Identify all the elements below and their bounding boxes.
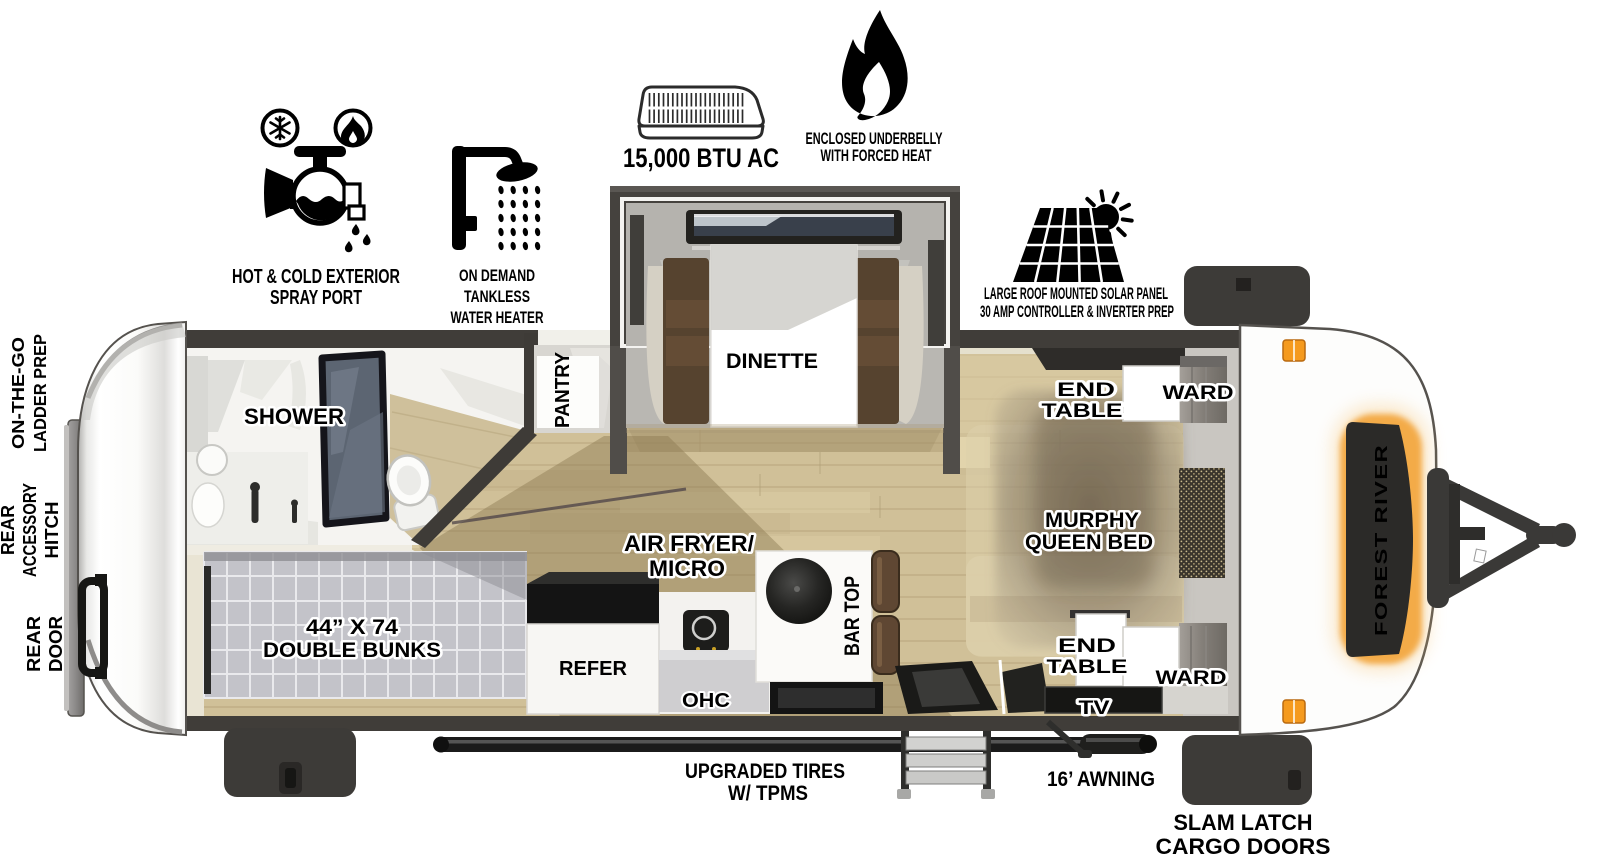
svg-text:OHC: OHC (682, 690, 730, 712)
svg-text:END: END (1058, 636, 1116, 657)
svg-text:MICRO: MICRO (649, 556, 725, 581)
svg-text:30 AMP CONTROLLER & INVERTER P: 30 AMP CONTROLLER & INVERTER PREP (980, 303, 1174, 321)
svg-text:DOOR: DOOR (45, 616, 66, 672)
svg-text:QUEEN BED: QUEEN BED (1025, 531, 1153, 554)
svg-text:REFER: REFER (559, 658, 628, 680)
svg-text:W/ TPMS: W/ TPMS (728, 782, 808, 805)
svg-text:DOUBLE BUNKS: DOUBLE BUNKS (263, 639, 441, 662)
svg-text:REAR: REAR (0, 505, 18, 555)
svg-text:SPRAY PORT: SPRAY PORT (270, 287, 362, 309)
svg-text:WITH FORCED HEAT: WITH FORCED HEAT (821, 146, 932, 165)
svg-text:HITCH: HITCH (42, 502, 62, 559)
svg-text:WARD: WARD (1163, 383, 1234, 404)
svg-text:TABLE: TABLE (1042, 401, 1123, 422)
svg-text:ON DEMAND: ON DEMAND (459, 266, 535, 285)
svg-text:AIR FRYER/: AIR FRYER/ (624, 531, 754, 556)
svg-text:DINETTE: DINETTE (726, 350, 818, 373)
svg-text:ACCESSORY: ACCESSORY (20, 483, 40, 577)
svg-text:ON-THE-GO: ON-THE-GO (8, 337, 28, 449)
svg-text:BAR TOP: BAR TOP (841, 576, 864, 656)
svg-text:44” X 74: 44” X 74 (306, 616, 398, 639)
svg-text:TABLE: TABLE (1047, 657, 1128, 678)
svg-text:CARGO DOORS: CARGO DOORS (1156, 834, 1331, 859)
svg-text:END: END (1057, 380, 1115, 401)
svg-text:WARD: WARD (1156, 668, 1227, 689)
svg-text:UPGRADED TIRES: UPGRADED TIRES (685, 760, 845, 783)
svg-text:HOT & COLD EXTERIOR: HOT & COLD EXTERIOR (232, 266, 400, 288)
svg-text:REAR: REAR (23, 616, 44, 672)
svg-text:TV: TV (1079, 698, 1110, 719)
svg-text:WATER HEATER: WATER HEATER (451, 308, 544, 327)
svg-text:FOREST RIVER: FOREST RIVER (1371, 444, 1391, 636)
svg-text:SHOWER: SHOWER (244, 404, 344, 429)
svg-text:SLAM LATCH: SLAM LATCH (1174, 810, 1313, 835)
svg-text:PANTRY: PANTRY (552, 351, 574, 428)
svg-text:MURPHY: MURPHY (1045, 509, 1139, 532)
svg-text:16’ AWNING: 16’ AWNING (1047, 768, 1155, 791)
svg-text:TANKLESS: TANKLESS (464, 287, 530, 306)
svg-text:15,000 BTU AC: 15,000 BTU AC (623, 143, 779, 173)
svg-text:LADDER PREP: LADDER PREP (30, 334, 50, 452)
svg-text:LARGE ROOF MOUNTED SOLAR PANEL: LARGE ROOF MOUNTED SOLAR PANEL (984, 285, 1168, 303)
